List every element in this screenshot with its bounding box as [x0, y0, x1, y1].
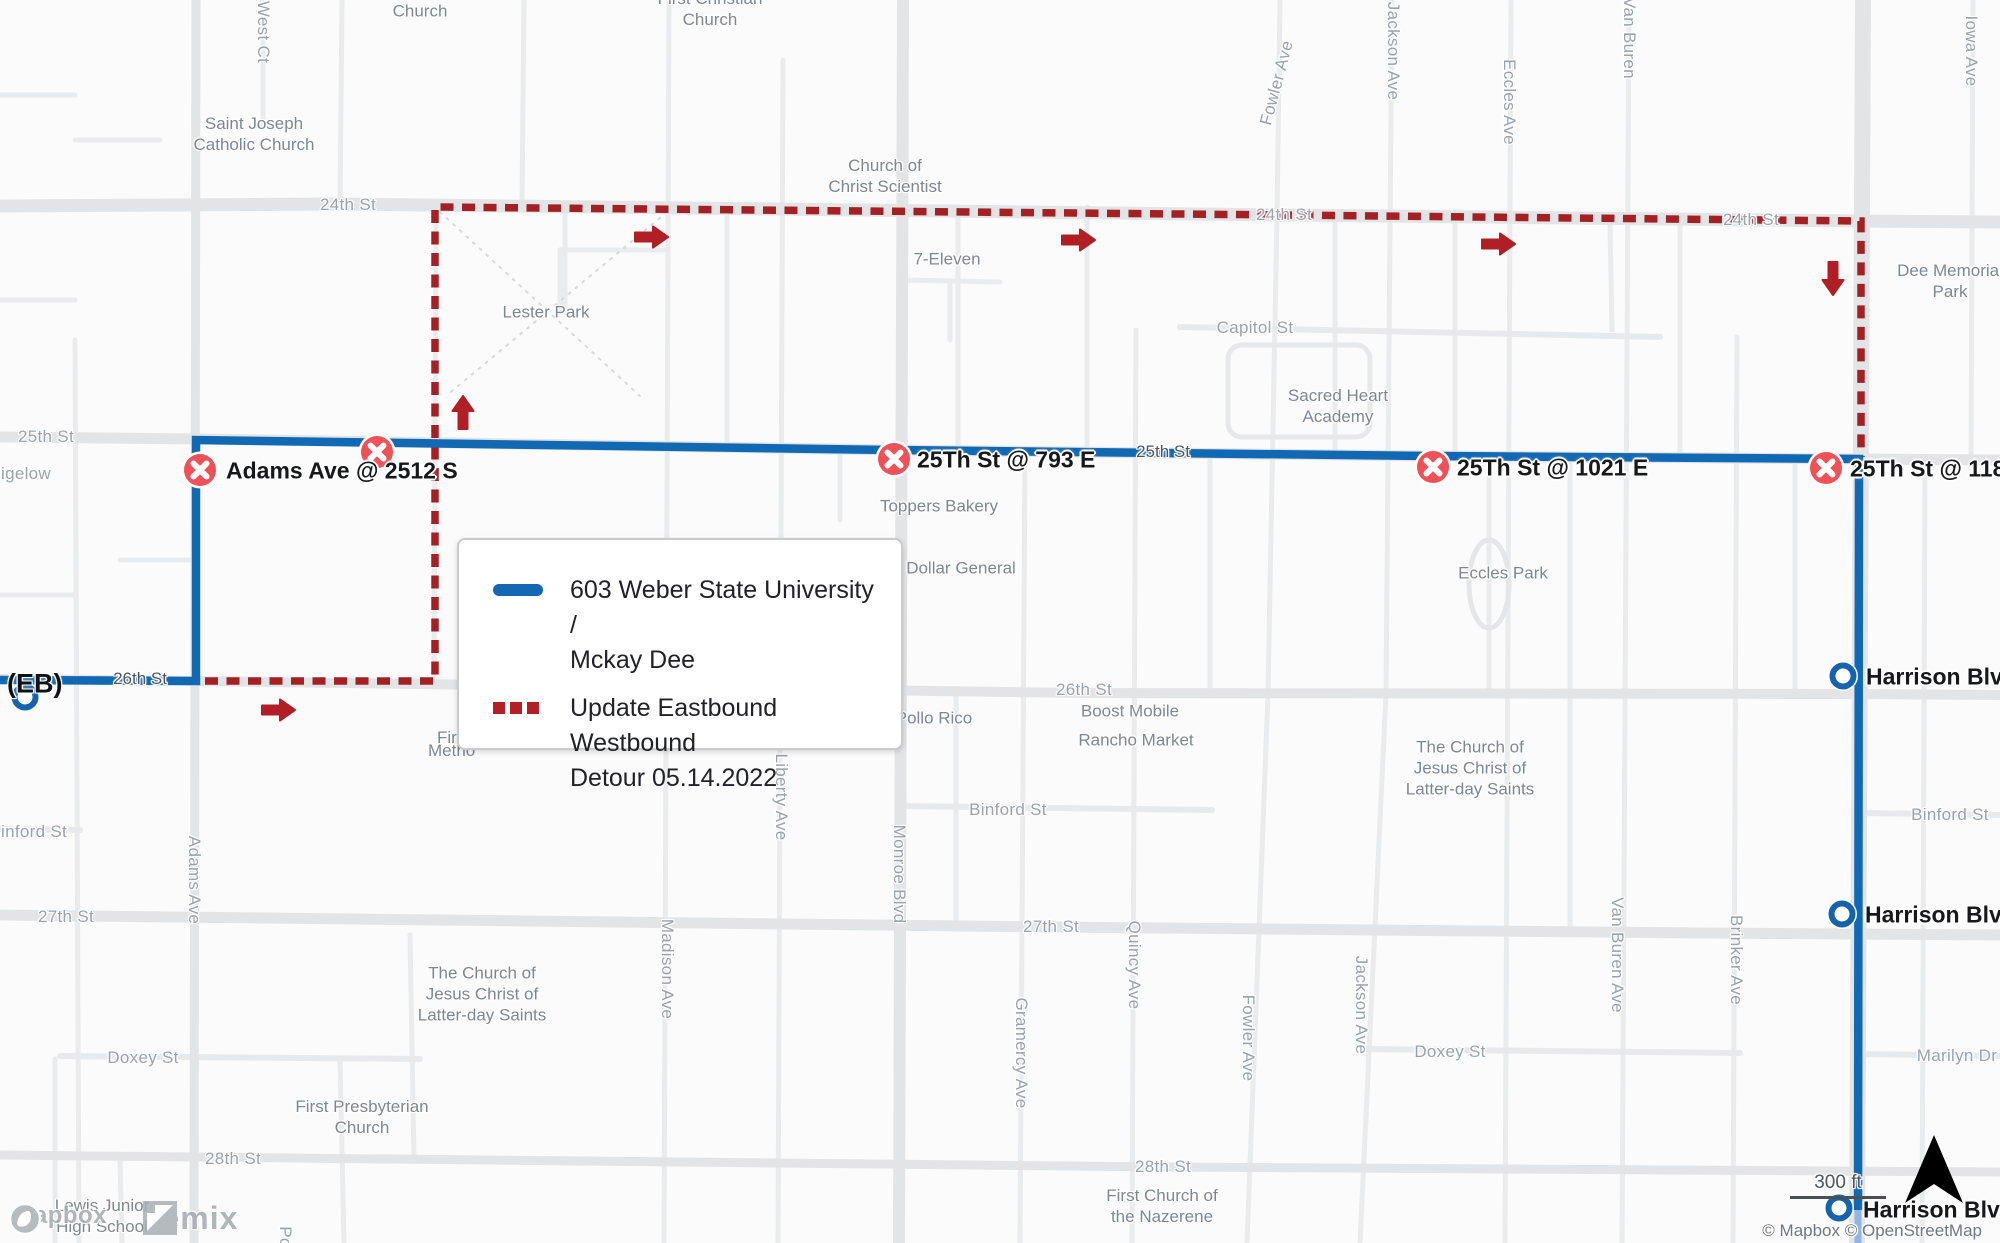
- poi-label: The Church ofJesus Christ ofLatter-day S…: [418, 963, 547, 1026]
- closed-stop-marker: [1808, 450, 1845, 487]
- street-label: 24th St: [1723, 210, 1779, 230]
- poi-label: Boost Mobile: [1081, 701, 1179, 722]
- street-label: Gramercy Ave: [1011, 998, 1031, 1109]
- scale-label: 300 ft: [1790, 1172, 1886, 1194]
- open-stop-markers[interactable]: [10, 661, 1858, 1223]
- street-label: Adams Ave: [184, 836, 204, 924]
- poi-label: First Church ofthe Nazerene: [1106, 1185, 1217, 1227]
- street-label: Monroe Blvd: [889, 825, 909, 924]
- poi-label: Pollo Rico: [896, 708, 973, 729]
- street-label: Brinker Ave: [1726, 915, 1746, 1005]
- closed-stop-marker: [876, 441, 913, 478]
- poi-label: Sacred HeartAcademy: [1288, 385, 1388, 427]
- street-label: 25th St: [18, 427, 74, 447]
- closed-stop-label: 25Th St @ 793 E: [917, 447, 1095, 474]
- scale-bar: [1790, 1196, 1886, 1199]
- street-label: 27th St: [38, 907, 94, 927]
- poi-label: Dollar General: [906, 558, 1016, 579]
- street-label: Marilyn Dr: [1917, 1046, 1997, 1066]
- remix-watermark: remix: [142, 1200, 238, 1237]
- street-label: Jackson Ave: [1351, 956, 1371, 1054]
- street-label: 24th St: [320, 195, 376, 215]
- street-label: Van Buren: [1619, 0, 1639, 79]
- street-label: Capitol St: [1217, 318, 1294, 338]
- poi-label: 7-Eleven: [913, 249, 980, 270]
- bus-route-line[interactable]: [0, 440, 1859, 1210]
- closed-stop-label: 25Th St @ 1021 E: [1457, 455, 1648, 482]
- street-label: Binford St: [969, 800, 1047, 820]
- street-label: Iowa Ave: [1961, 15, 1981, 86]
- street-label: igelow: [1, 464, 51, 484]
- poi-label: Eccles Park: [1458, 563, 1548, 584]
- street-label: 25th St: [1136, 442, 1190, 462]
- street-label: Doxey St: [107, 1048, 178, 1068]
- street-label: West Ct: [253, 1, 273, 63]
- street-label: Fowler Ave: [1238, 995, 1258, 1082]
- poi-label: Church ofChrist Scientist: [828, 155, 941, 197]
- street-label: 26th St: [1056, 680, 1112, 700]
- mapbox-watermark[interactable]: mapbox: [8, 1202, 107, 1230]
- road-network: [0, 0, 2000, 1243]
- closed-stop-marker: [182, 452, 219, 489]
- poi-label: Rancho Market: [1078, 730, 1193, 751]
- street-label: Quincy Ave: [1124, 921, 1144, 1010]
- poi-label: Saint JosephCatholic Church: [194, 113, 315, 155]
- route-line-swatch-icon: [493, 584, 543, 596]
- street-label: 24th St: [1256, 205, 1312, 225]
- legend: 603 Weber State University /Mckay Dee Up…: [457, 538, 903, 750]
- legend-detour-label: Update Eastbound WestboundDetour 05.14.2…: [570, 691, 883, 796]
- poi-label: Toppers Bakery: [880, 496, 998, 517]
- mapbox-logo-icon: [8, 1202, 42, 1236]
- direction-label-eb: (EB): [7, 669, 63, 700]
- open-stop-marker: [1827, 899, 1857, 929]
- poi-label: Lester Park: [503, 302, 590, 323]
- open-stop-label: Harrison Blvd: [1866, 664, 2000, 691]
- closed-stop-marker: [1415, 449, 1452, 486]
- poi-label: First ChristianChurch: [658, 0, 763, 30]
- poi-label: First PresbyterianChurch: [295, 1096, 428, 1138]
- street-label: Binford St: [1911, 805, 1989, 825]
- open-stop-label: Harrison Blvd: [1865, 902, 2000, 929]
- poi-label: Dee MemorialPark: [1897, 260, 2000, 302]
- street-label: Eccles Ave: [1499, 59, 1519, 145]
- legend-route-row: 603 Weber State University /Mckay Dee: [493, 573, 883, 678]
- street-label: 27th St: [1023, 917, 1079, 937]
- remix-logo-icon: [142, 1200, 178, 1236]
- poi-label: Church: [393, 1, 448, 22]
- legend-route-label: 603 Weber State University /Mckay Dee: [570, 573, 883, 678]
- street-label: Madison Ave: [657, 919, 677, 1019]
- map-attribution[interactable]: © Mapbox © OpenStreetMap: [1762, 1221, 1982, 1241]
- legend-detour-row: Update Eastbound WestboundDetour 05.14.2…: [493, 691, 883, 796]
- open-stop-label: Harrison Blvd: [1863, 1197, 2000, 1224]
- poi-label: The Church ofJesus Christ ofLatter-day S…: [1406, 737, 1535, 800]
- map-canvas[interactable]: 25th St igelow 24th St 24th St 24th St 2…: [0, 0, 2000, 1243]
- street-label: Van Buren Ave: [1607, 897, 1627, 1013]
- street-label: Po: [275, 1226, 295, 1243]
- street-label: 26th St: [113, 669, 167, 689]
- map-layers: [0, 0, 2000, 1243]
- street-label: 28th St: [205, 1149, 261, 1169]
- street-label: Doxey St: [1414, 1042, 1485, 1062]
- street-label: 28th St: [1135, 1157, 1191, 1177]
- detour-line-swatch-icon: [493, 702, 539, 714]
- closed-stop-label: 25Th St @ 118: [1850, 456, 2000, 483]
- street-label: Jackson Ave: [1383, 2, 1403, 100]
- closed-stop-label: Adams Ave @ 2512 S: [226, 458, 458, 485]
- street-label: inford St: [1, 822, 67, 842]
- open-stop-marker: [1828, 661, 1858, 691]
